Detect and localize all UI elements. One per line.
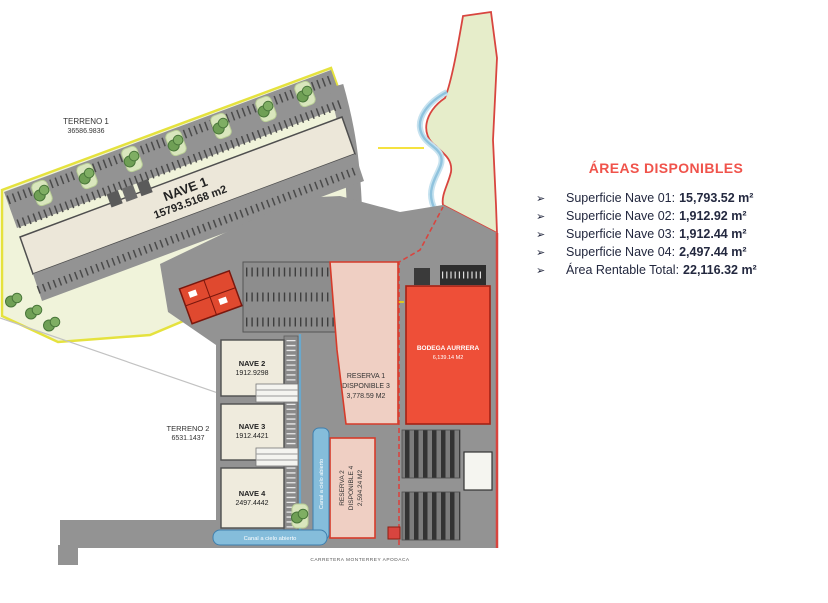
small-building — [464, 452, 492, 490]
canal-horizontal-label: Canal a cielo abierto — [244, 536, 297, 542]
terreno1-label: TERRENO 1 — [63, 117, 109, 126]
legend-item-label: Área Rentable Total: — [566, 262, 679, 279]
parking-grid — [243, 262, 338, 332]
legend-item-nave2: ➢ Superficie Nave 02: 1,912.92 m² — [530, 208, 802, 226]
legend-item-value: 15,793.52 m² — [679, 190, 753, 207]
legend-item-value: 22,116.32 m² — [683, 262, 757, 279]
legend-item-label: Superficie Nave 02: — [566, 208, 675, 225]
site-plan-map: NAVE 1 15793.5168 m2 TERRENO 1 36586.983… — [0, 0, 828, 603]
bodega-area: 6,139.14 M2 — [433, 355, 464, 361]
reserva2-line2: DISPONIBLE 4 — [348, 465, 355, 510]
nave4-label: NAVE 4 — [239, 489, 266, 498]
legend-item-value: 1,912.44 m² — [679, 226, 746, 243]
terreno1-area: 36586.9836 — [68, 128, 105, 135]
nave3-label: NAVE 3 — [239, 422, 266, 431]
arrow-bullet-icon: ➢ — [536, 263, 552, 280]
site-plan-page: NAVE 1 15793.5168 m2 TERRENO 1 36586.983… — [0, 0, 828, 603]
legend-item-label: Superficie Nave 01: — [566, 190, 675, 207]
tree-island-bottom — [292, 504, 309, 528]
nave4-building — [221, 468, 284, 528]
legend-item-nave1: ➢ Superficie Nave 01: 15,793.52 m² — [530, 190, 802, 208]
docks-3-4 — [256, 448, 298, 466]
arrow-bullet-icon: ➢ — [536, 209, 552, 226]
nave3-area: 1912.4421 — [235, 433, 268, 440]
legend-item-label: Superficie Nave 03: — [566, 226, 675, 243]
reserva2-line1: RESERVA 2 — [339, 470, 346, 506]
road-caption: CARRETERA MONTERREY APODACA — [310, 557, 410, 563]
legend-item-total: ➢ Área Rentable Total: 22,116.32 m² — [530, 262, 802, 280]
nave2-area: 1912.9298 — [235, 370, 268, 377]
bodega-building: BODEGA AURRERA 6,139.14 M2 — [406, 265, 490, 424]
naves-column: NAVE 2 1912.9298 NAVE 3 1912.4421 NAVE 4… — [221, 334, 300, 534]
red-marker — [388, 527, 400, 539]
canal-vertical: Canal a cielo abierto — [313, 428, 329, 540]
arrow-bullet-icon: ➢ — [536, 191, 552, 208]
terreno2-area: 6531.1437 — [171, 435, 204, 442]
reserva2-line3: 2,594.24 M2 — [357, 470, 364, 507]
legend-panel: ÁREAS DISPONIBLES ➢ Superficie Nave 01: … — [530, 160, 802, 280]
arrow-bullet-icon: ➢ — [536, 227, 552, 244]
reserva2: RESERVA 2 DISPONIBLE 4 2,594.24 M2 — [330, 438, 375, 538]
nave2-label: NAVE 2 — [239, 359, 266, 368]
legend-title: ÁREAS DISPONIBLES — [566, 160, 766, 176]
reserva1-line1: RESERVA 1 — [347, 373, 385, 380]
legend-item-value: 2,497.44 m² — [679, 244, 746, 261]
canal-horizontal: Canal a cielo abierto — [213, 530, 327, 545]
reserva1-line3: 3,778.59 M2 — [347, 393, 386, 400]
docks-2-3 — [256, 384, 298, 402]
legend-item-nave4: ➢ Superficie Nave 04: 2,497.44 m² — [530, 244, 802, 262]
nave4-area: 2497.4442 — [235, 500, 268, 507]
terreno2-label: TERRENO 2 — [167, 424, 210, 433]
legend-item-label: Superficie Nave 04: — [566, 244, 675, 261]
reserva1-line2: DISPONIBLE 3 — [342, 383, 390, 390]
legend-item-value: 1,912.92 m² — [679, 208, 746, 225]
canal-vertical-label: Canal a cielo abierto — [319, 459, 325, 509]
legend-item-nave3: ➢ Superficie Nave 03: 1,912.44 m² — [530, 226, 802, 244]
arrow-bullet-icon: ➢ — [536, 245, 552, 262]
bodega-label: BODEGA AURRERA — [417, 345, 480, 352]
